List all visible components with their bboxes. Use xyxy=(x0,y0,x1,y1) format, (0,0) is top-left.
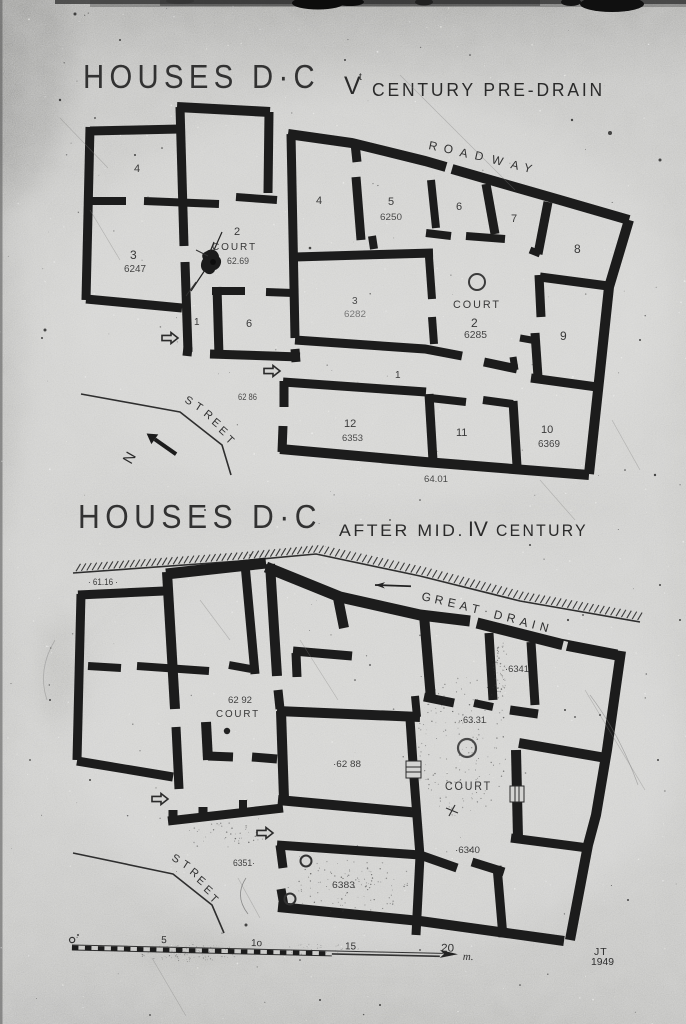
svg-text:6: 6 xyxy=(456,201,462,213)
svg-text:HOUSES D·C: HOUSES D·C xyxy=(83,58,320,95)
svg-text:62 92: 62 92 xyxy=(228,695,252,706)
svg-text:COURT: COURT xyxy=(212,241,257,253)
svg-text:1: 1 xyxy=(194,317,200,328)
svg-text:6250: 6250 xyxy=(380,212,402,222)
svg-text:CENTURY: CENTURY xyxy=(496,521,588,540)
svg-text:·6341: ·6341 xyxy=(505,664,529,675)
svg-text:9: 9 xyxy=(560,329,567,343)
svg-text:IV: IV xyxy=(468,518,488,541)
svg-text:10: 10 xyxy=(541,424,553,436)
svg-text:4: 4 xyxy=(316,195,322,207)
svg-text:5: 5 xyxy=(388,196,394,208)
svg-text:HOUSES D·C: HOUSES D·C xyxy=(78,498,322,535)
svg-text:·62 88: ·62 88 xyxy=(333,759,361,770)
svg-text:20: 20 xyxy=(441,942,454,954)
svg-text:COURT: COURT xyxy=(216,708,260,720)
svg-text:64.01: 64.01 xyxy=(424,474,448,484)
svg-text:6353: 6353 xyxy=(342,433,363,443)
svg-text:·63.31: ·63.31 xyxy=(460,715,486,726)
svg-text:COURT: COURT xyxy=(445,781,492,793)
svg-text:6: 6 xyxy=(246,318,252,330)
svg-text:1o: 1o xyxy=(251,938,263,949)
svg-text:6351·: 6351· xyxy=(233,858,255,869)
svg-text:6282: 6282 xyxy=(344,309,366,319)
svg-text:· 61.16 ·: · 61.16 · xyxy=(88,577,118,587)
svg-text:6285: 6285 xyxy=(464,330,487,341)
svg-text:62.69: 62.69 xyxy=(227,256,249,266)
svg-text:COURT: COURT xyxy=(453,299,501,311)
svg-text:4: 4 xyxy=(134,163,140,175)
svg-text:m.: m. xyxy=(463,951,474,963)
svg-text:3: 3 xyxy=(130,248,137,262)
svg-text:6383: 6383 xyxy=(332,880,355,891)
svg-text:8: 8 xyxy=(574,242,581,256)
svg-text:·6340: ·6340 xyxy=(455,845,480,856)
svg-text:7: 7 xyxy=(511,213,517,225)
svg-text:12: 12 xyxy=(344,418,356,430)
svg-text:6247: 6247 xyxy=(124,264,146,275)
svg-text:2: 2 xyxy=(234,226,240,238)
svg-text:1: 1 xyxy=(395,370,401,381)
svg-text:2: 2 xyxy=(471,316,478,330)
svg-text:3: 3 xyxy=(352,296,358,307)
svg-text:15: 15 xyxy=(345,941,357,952)
svg-text:11: 11 xyxy=(456,427,467,439)
svg-text:1949: 1949 xyxy=(591,957,614,968)
svg-text:5: 5 xyxy=(161,935,167,946)
svg-text:6369: 6369 xyxy=(538,439,560,450)
svg-text:t: t xyxy=(359,72,362,83)
svg-text:62 86: 62 86 xyxy=(238,392,257,402)
svg-text:AFTER MID.: AFTER MID. xyxy=(339,521,465,540)
